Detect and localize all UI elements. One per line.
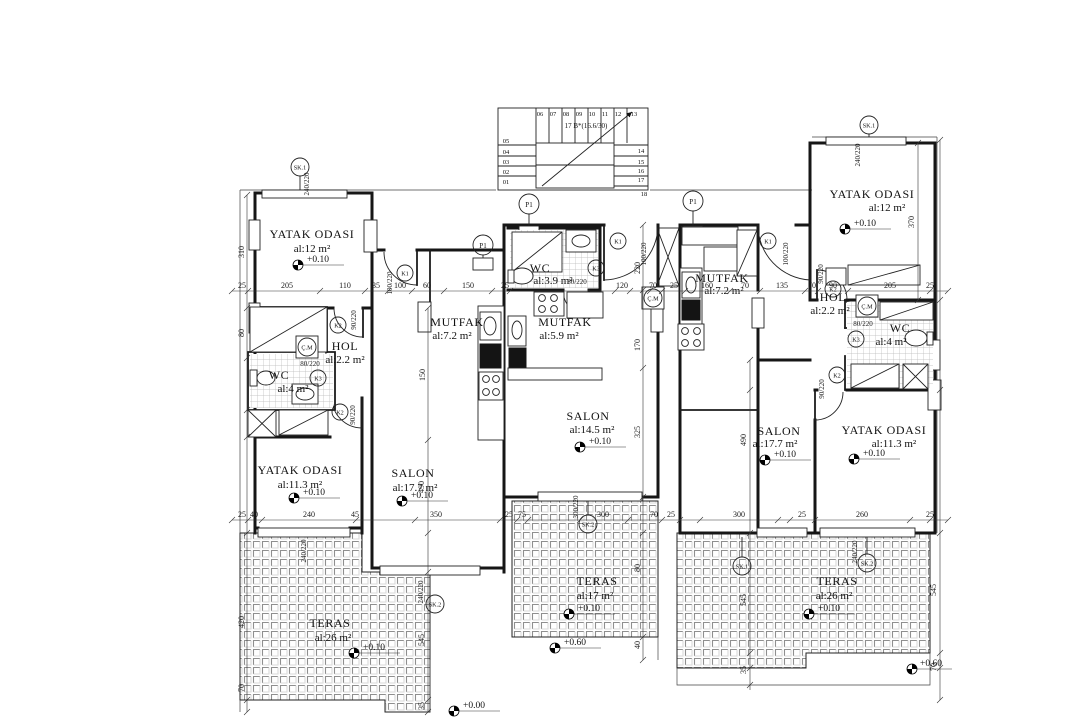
door-mark-k2: K2 [330, 317, 346, 333]
door-size: 100/220 [782, 242, 790, 265]
dim-value: 490 [417, 481, 426, 493]
room-name: WC [530, 261, 551, 275]
dim-value: 40 [250, 510, 258, 519]
room-area: al:2.2 m² [810, 305, 850, 317]
door-center-k1 [604, 225, 658, 280]
room-name: YATAK ODASI [258, 463, 343, 477]
room-name: YATAK ODASI [842, 423, 927, 437]
mark-label: SK.2 [861, 561, 874, 568]
dim-value: 205 [884, 281, 896, 290]
dim-value: 545 [929, 584, 938, 596]
mark-label: SK.1 [863, 123, 876, 130]
closet-right-bedroom1 [826, 265, 920, 285]
dim-value: 25 [926, 510, 934, 519]
level-marker: +0.10 [840, 219, 891, 234]
step-number: 14 [638, 148, 645, 155]
dim-value: 325 [633, 426, 642, 438]
dim-value: 25 [798, 510, 806, 519]
room-area: al:12 m² [869, 202, 906, 214]
dim-value: 25 [667, 510, 675, 519]
level-value: +0.10 [818, 604, 840, 614]
door-size: 90/220 [350, 310, 358, 330]
dim-value: 60 [423, 281, 431, 290]
dim-value: 35 [739, 666, 748, 674]
window [380, 566, 480, 575]
room-area: al:7.2 m² [432, 330, 472, 342]
room-name: TERAS [309, 616, 350, 630]
dim-value: 70 [929, 663, 938, 671]
step-number: 17 [638, 177, 645, 184]
dim-value: 490 [739, 434, 748, 446]
mark-label: K1 [401, 271, 409, 278]
room-area: al:4 m² [277, 383, 309, 395]
dim-value: 370 [907, 216, 916, 228]
dim-value: 70 [650, 510, 658, 519]
door-size: 80/220 [853, 320, 873, 328]
dim-value: 240 [303, 510, 315, 519]
column-mark-p1: P1 [683, 191, 703, 226]
window [538, 492, 642, 501]
level-value: +0.10 [578, 604, 600, 614]
dim-value: 300 [733, 510, 745, 519]
window-mark-sk2: SK.2 [426, 595, 444, 613]
window-size: 240/220 [300, 539, 308, 562]
window [826, 137, 906, 145]
mark-label: P1 [479, 242, 487, 250]
dim-value: 40 [633, 641, 642, 649]
step-number: 05 [503, 138, 510, 145]
dim-value: 45 [351, 510, 359, 519]
level-value: +0.10 [863, 449, 885, 459]
dim-value: 220 [633, 262, 642, 274]
dim-value: 350 [430, 510, 442, 519]
room-name: YATAK ODASI [830, 187, 915, 201]
dim-value: 70 [808, 281, 816, 290]
room-name: SALON [757, 424, 800, 438]
dim-value: 100 [394, 281, 406, 290]
dim-value: 75 [518, 510, 526, 519]
door-size: 80/220 [567, 278, 587, 286]
window-mark-sk1: SK.1 [860, 116, 878, 137]
door-mark-k2: K2 [332, 404, 348, 420]
dim-value: 70 [237, 684, 246, 692]
level-marker: +0.10 [760, 450, 811, 465]
level-value: +0.10 [774, 450, 796, 460]
dim-value: 310 [237, 246, 246, 258]
level-value: +0.10 [363, 643, 385, 653]
door-mark-k2: K2 [829, 367, 845, 383]
mark-label: K3 [852, 337, 860, 344]
level-marker: +0.60 [550, 638, 601, 653]
level-value: +0.10 [303, 488, 325, 498]
closet-left [248, 410, 328, 437]
room-name: WC [890, 321, 911, 335]
dim-value: 170 [633, 339, 642, 351]
room-name: SALON [566, 409, 609, 423]
mark-label: SK.2 [582, 522, 595, 529]
dim-value: 80 [237, 329, 246, 337]
mark-label: SK.1 [736, 564, 749, 571]
window [820, 528, 915, 537]
dim-value: 70 [649, 281, 657, 290]
dim-value: 160 [701, 281, 713, 290]
stair-note: 17 B*(16.6/30) [565, 122, 608, 130]
mark-label: K3 [592, 266, 600, 273]
step-number: 13 [631, 111, 638, 118]
dim-value: 135 [776, 281, 788, 290]
dim-value: 150 [462, 281, 474, 290]
step-number: 08 [563, 111, 570, 118]
mark-label: P1 [689, 198, 697, 206]
step-number: 02 [503, 169, 510, 176]
window-size: 240/220 [854, 143, 862, 166]
mark-label: P1 [525, 201, 533, 209]
level-marker: +0.10 [849, 449, 900, 464]
door-size: 90/220 [349, 405, 357, 425]
room-name: MUTFAK [430, 315, 483, 329]
terrace-right [677, 533, 930, 668]
step-number: 09 [576, 111, 583, 118]
mark-label: K2 [334, 323, 342, 330]
step-number: 12 [615, 111, 622, 118]
room-area: al:14.5 m² [570, 424, 616, 436]
column-mark-p1: P1 [473, 235, 493, 258]
column-mark-p1: P1 [519, 194, 539, 226]
door-size: 90/220 [817, 264, 825, 284]
dim-value: 120 [616, 281, 628, 290]
dim-value: 205 [281, 281, 293, 290]
step-number: 15 [638, 159, 645, 166]
room-area: al:26 m² [816, 590, 853, 602]
floor-plan-drawing: 06 07 08 09 10 11 12 13 05 04 03 02 01 1… [0, 0, 1075, 720]
dim-value: 25 [926, 281, 934, 290]
door-mark-k1: K1 [397, 265, 413, 281]
door-size: 80/220 [300, 360, 320, 368]
dim-value: 70 [741, 281, 749, 290]
dim-value: 25 [501, 281, 509, 290]
window-size: 240/220 [417, 580, 425, 603]
window [258, 528, 350, 537]
dim-value: 150 [418, 369, 427, 381]
dim-value: 25 [238, 281, 246, 290]
level-value: +0.10 [589, 437, 611, 447]
level-value: +0.10 [307, 255, 329, 265]
floor-plan-page: 06 07 08 09 10 11 12 13 05 04 03 02 01 1… [0, 0, 1075, 720]
step-number: 18 [641, 191, 648, 198]
dim-value: 25 [505, 510, 513, 519]
level-value: +0.60 [564, 638, 586, 648]
dim-value: 80 [633, 564, 642, 572]
window [757, 528, 807, 537]
window-size: 240/220 [303, 172, 311, 195]
mark-label: K3 [314, 376, 322, 383]
dim-value: 35 [417, 702, 426, 710]
dim-value: 545 [417, 634, 426, 646]
mark-label: K2 [833, 373, 841, 380]
mark-label: K1 [764, 239, 772, 246]
dim-value: 25 [238, 510, 246, 519]
window-size: 240/220 [851, 540, 859, 563]
room-area: al:2.2 m² [325, 354, 365, 366]
room-name: HOL [332, 339, 358, 353]
step-number: 11 [602, 111, 608, 118]
mark-label: SK.1 [294, 165, 307, 172]
level-value: +0.10 [854, 219, 876, 229]
dim-value: 90 [829, 281, 837, 290]
level-marker: +0.10 [293, 255, 344, 270]
room-area: al:4 m² [875, 336, 907, 348]
door-mark-k1: K1 [760, 233, 776, 249]
sink-center-wc [566, 230, 596, 252]
window-size: 300/220 [572, 495, 580, 518]
mark-label: Ç.M [647, 296, 659, 303]
mark-label: Ç.M [301, 345, 313, 352]
dim-value: 110 [339, 281, 351, 290]
mark-label: K2 [336, 410, 344, 417]
room-area: al:26 m² [315, 632, 352, 644]
room-area: al:17.7 m² [753, 438, 799, 450]
step-number: 01 [503, 179, 510, 186]
room-name: TERAS [576, 574, 617, 588]
room-name: TERAS [816, 574, 857, 588]
level-value: +0.00 [463, 701, 485, 711]
room-name: WC [269, 368, 290, 382]
room-area: al:5.9 m² [539, 330, 579, 342]
room-name: MUTFAK [538, 315, 591, 329]
step-number: 06 [537, 111, 544, 118]
room-area: al:12 m² [294, 243, 331, 255]
step-number: 03 [503, 159, 510, 166]
dim-value: 420 [237, 616, 246, 628]
step-number: 04 [503, 149, 510, 156]
level-marker: +0.00 [449, 701, 500, 716]
mark-label: K1 [614, 239, 622, 246]
door-size: 90/220 [818, 379, 826, 399]
dim-value: 545 [739, 594, 748, 606]
dim-value: 25 [670, 281, 678, 290]
door-mark-k1: K1 [610, 233, 626, 249]
step-number: 16 [638, 168, 645, 175]
step-number: 07 [550, 111, 557, 118]
staircase: 06 07 08 09 10 11 12 13 05 04 03 02 01 1… [498, 108, 648, 198]
dim-value: 260 [856, 510, 868, 519]
level-marker: +0.10 [575, 437, 626, 452]
room-area: al:17 m² [577, 590, 614, 602]
dim-value: 35 [372, 281, 380, 290]
door-size: 100/220 [640, 242, 648, 265]
step-number: 10 [589, 111, 596, 118]
mark-label: Ç.M [861, 304, 873, 311]
dim-value: 300 [597, 510, 609, 519]
room-name: YATAK ODASI [270, 227, 355, 241]
mark-label: SK.2 [429, 602, 442, 609]
